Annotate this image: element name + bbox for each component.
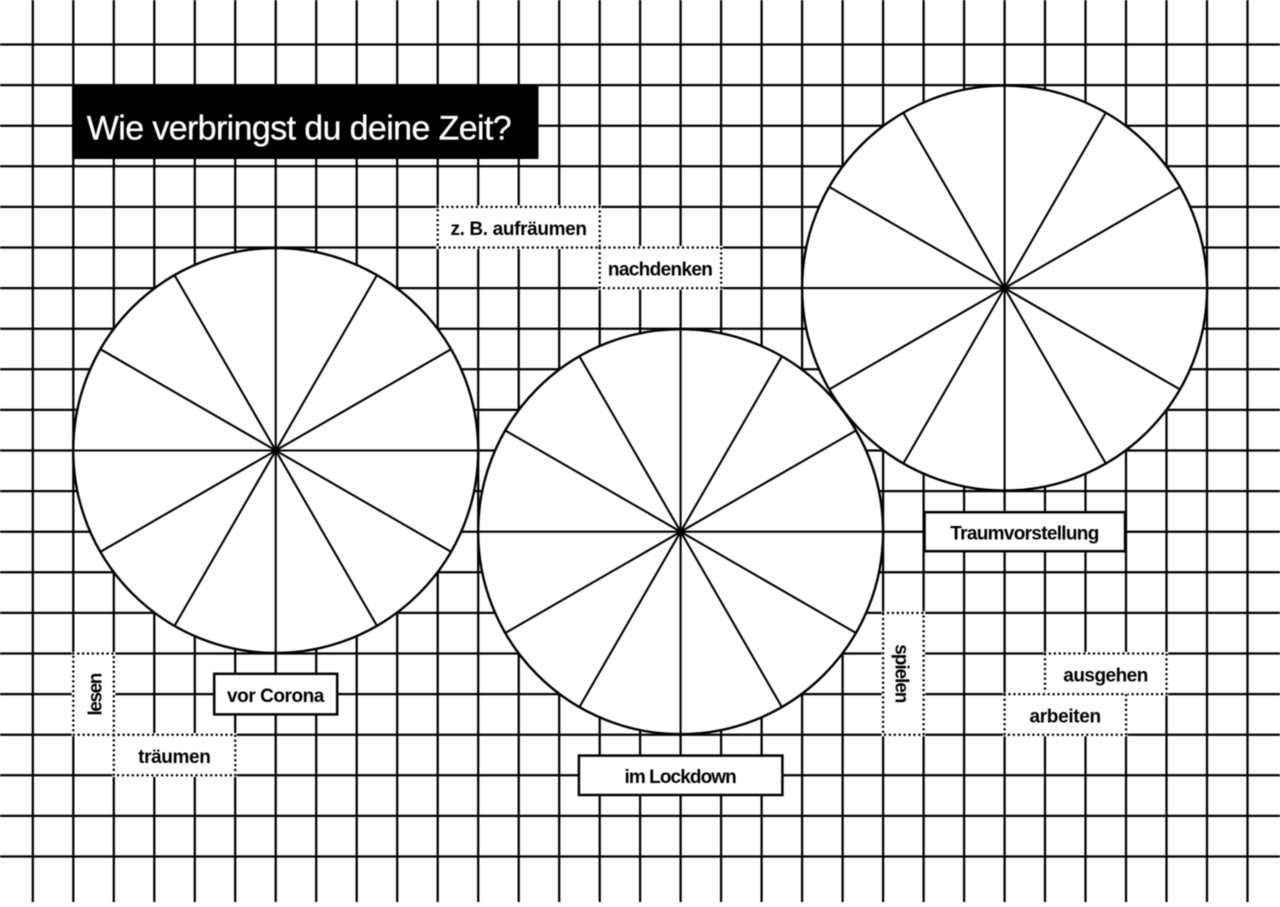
svg-text:Traumvorstellung: Traumvorstellung bbox=[950, 524, 1099, 545]
svg-text:nachdenken: nachdenken bbox=[608, 260, 713, 281]
svg-text:spielen: spielen bbox=[890, 644, 911, 703]
svg-text:z. B. aufräumen: z. B. aufräumen bbox=[450, 219, 587, 240]
svg-text:Wie verbringst du deine Zeit?: Wie verbringst du deine Zeit? bbox=[87, 110, 512, 148]
svg-text:im Lockdown: im Lockdown bbox=[624, 767, 736, 788]
svg-text:träumen: träumen bbox=[138, 747, 211, 768]
svg-text:lesen: lesen bbox=[85, 673, 106, 716]
svg-text:arbeiten: arbeiten bbox=[1029, 706, 1101, 727]
svg-text:vor Corona: vor Corona bbox=[227, 686, 325, 707]
svg-text:ausgehen: ausgehen bbox=[1063, 666, 1148, 687]
